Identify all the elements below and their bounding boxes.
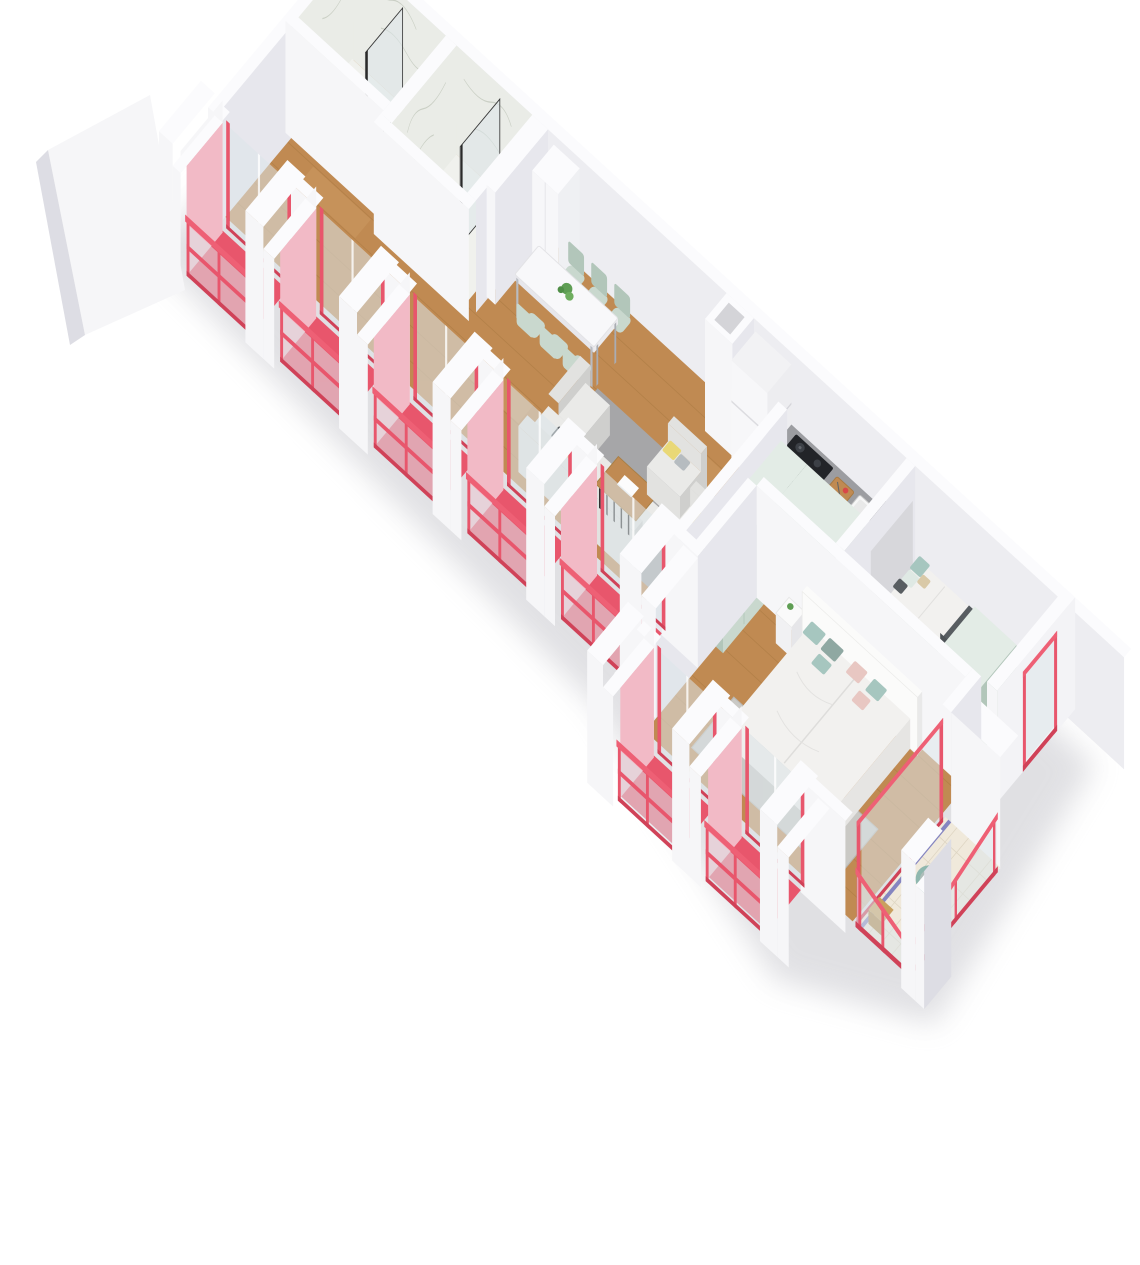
apartment-isometric-svg	[0, 0, 1140, 1265]
floor-plan-render	[0, 0, 1140, 1265]
